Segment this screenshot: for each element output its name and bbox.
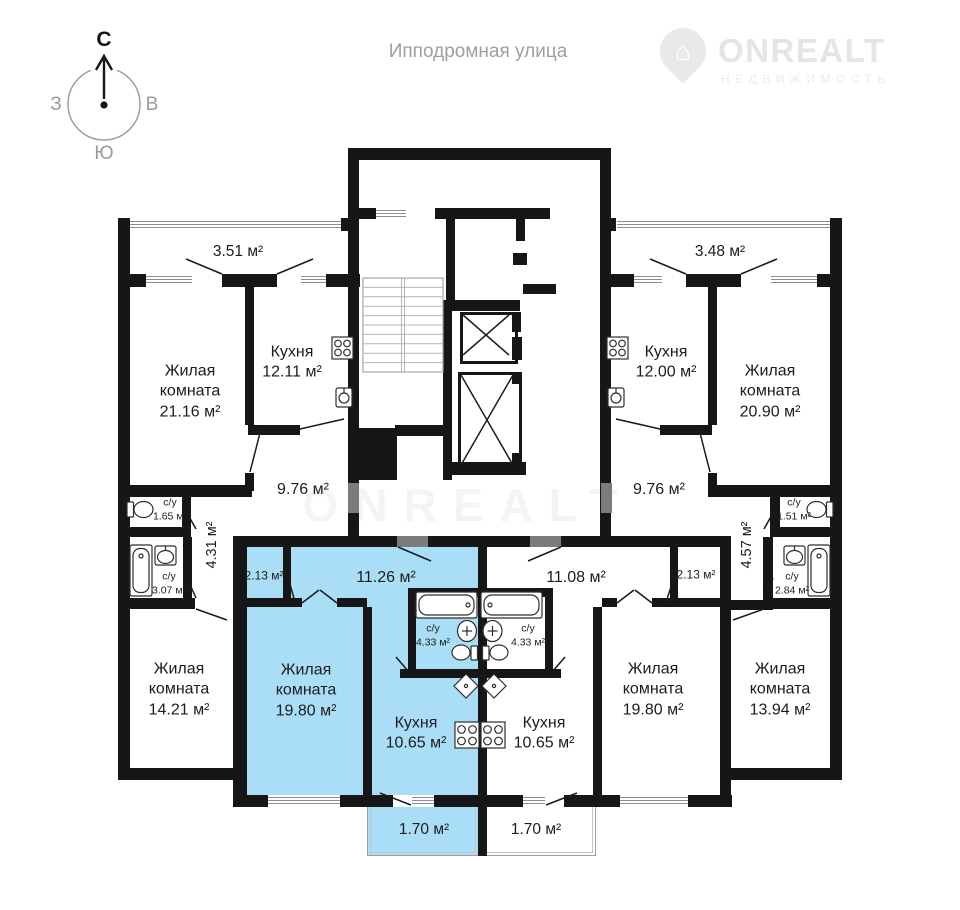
room-name: Жилая комната	[606, 660, 700, 701]
closet-area-blue: 2.13 м²	[245, 568, 284, 583]
wc-label-right-big: с/у 2.84 м²	[775, 570, 809, 597]
room-name: Жилая комната	[723, 362, 817, 403]
room-label-kitchen-blue: Кухня 10.65 м²	[386, 714, 447, 755]
door-swing	[187, 578, 196, 598]
room-area: 20.90 м²	[723, 402, 817, 422]
balcony-area-blue: 1.70 м²	[399, 820, 449, 840]
room-area: 19.80 м²	[606, 700, 700, 720]
logo-brand: ONREALT	[718, 32, 886, 70]
stove-icon	[332, 337, 628, 748]
room-label-bedroom-right: Жилая комната 13.94 м²	[733, 660, 827, 721]
room-name: Жилая комната	[733, 660, 827, 701]
wc-label-left-small: с/у 1.65 м²	[153, 496, 187, 523]
room-name: Кухня	[636, 343, 697, 363]
wc-label-left-big: с/у 3.07 м²	[152, 570, 186, 597]
compass-west-label: З	[50, 94, 61, 116]
door-swing	[764, 578, 773, 598]
door-swing	[733, 609, 764, 620]
wc-area: 2.84 м²	[775, 584, 809, 598]
door-swing	[617, 590, 634, 603]
room-label-kitchen-right: Кухня 12.00 м²	[636, 343, 697, 384]
door-swing	[196, 609, 227, 620]
street-label: Ипподромная улица	[389, 41, 568, 63]
logo-tagline: НЕДВИЖИМОСТЬ	[721, 72, 891, 86]
door-swing	[616, 419, 660, 429]
bathtub-icon	[130, 545, 830, 618]
compass-east-label: В	[146, 94, 159, 116]
sink-icon	[155, 388, 805, 642]
wc-name: с/у	[416, 622, 450, 636]
room-label-living-right: Жилая комната 20.90 м²	[723, 362, 817, 423]
room-label-living-left: Жилая комната 21.16 м²	[143, 362, 237, 423]
room-name: Жилая комната	[132, 660, 226, 701]
corridor-area-left: 4.31 м²	[203, 521, 221, 568]
room-name: Кухня	[262, 343, 322, 363]
compass-icon	[68, 55, 140, 140]
house-icon: ⌂	[660, 28, 706, 74]
elevator-x-icon	[461, 315, 513, 465]
wc-name: с/у	[511, 622, 545, 636]
wc-label-blue: с/у 4.33 м²	[416, 622, 450, 649]
onrealt-logo: ⌂ ONREALT НЕДВИЖИМОСТЬ	[650, 20, 950, 98]
hall-area-center-right: 11.08 м²	[546, 568, 606, 588]
room-area: 21.16 м²	[143, 402, 237, 422]
door-swing	[741, 259, 777, 274]
door-swing	[546, 793, 577, 805]
room-area: 10.65 м²	[514, 734, 575, 754]
room-name: Жилая комната	[143, 362, 237, 403]
door-swing	[288, 577, 295, 602]
door-swing	[320, 590, 337, 603]
corridor-area-right: 4.57 м²	[738, 521, 756, 568]
door-swing	[764, 513, 773, 529]
plan-overlay	[0, 0, 960, 910]
door-swing	[277, 259, 313, 274]
room-area: 19.80 м²	[259, 701, 353, 721]
room-label-bedroom-left: Жилая комната 14.21 м²	[132, 660, 226, 721]
door-swing	[650, 259, 686, 274]
door-swing	[699, 429, 710, 472]
hall-area-right: 9.76 м²	[633, 480, 685, 500]
door-swing	[396, 657, 408, 671]
room-name: Кухня	[514, 714, 575, 734]
room-label-living-blue: Жилая комната 19.80 м²	[259, 661, 353, 722]
toilet-icon	[127, 502, 833, 661]
wc-area: 1.65 м²	[153, 510, 187, 524]
room-label-kitchen-center-right: Кухня 10.65 м²	[514, 714, 575, 755]
wc-name: с/у	[777, 496, 811, 510]
door-swing	[250, 429, 261, 472]
balcony-area-left: 3.51 м²	[213, 242, 263, 262]
door-swing	[187, 513, 196, 529]
room-label-kitchen-left: Кухня 12.11 м²	[262, 343, 322, 384]
door-swing	[666, 578, 674, 602]
wc-area: 3.07 м²	[152, 584, 186, 598]
wc-area: 4.33 м²	[416, 636, 450, 650]
room-area: 14.21 м²	[132, 700, 226, 720]
map-pin-icon: ⌂	[650, 18, 715, 83]
closet-area-center-right: 2.13 м²	[677, 567, 716, 582]
compass-north-label: С	[96, 28, 111, 52]
room-label-living-center-right: Жилая комната 19.80 м²	[606, 660, 700, 721]
wc-name: с/у	[775, 570, 809, 584]
compass-south-label: Ю	[94, 143, 113, 165]
room-name: Жилая комната	[259, 661, 353, 702]
staircase	[363, 278, 443, 372]
room-area: 12.11 м²	[262, 363, 322, 383]
wc-name: с/у	[153, 496, 187, 510]
door-swing	[300, 419, 344, 429]
balcony-area-center-right: 1.70 м²	[511, 820, 561, 840]
room-area: 12.00 м²	[636, 363, 697, 383]
floor-plan-page: Ипподромная улица С З В Ю ⌂ ONREALT НЕДВ…	[0, 0, 960, 910]
wc-label-right-small: с/у 1.51 м²	[777, 496, 811, 523]
room-area: 13.94 м²	[733, 700, 827, 720]
door-swing	[528, 547, 561, 561]
wc-label-center-right: с/у 4.33 м²	[511, 622, 545, 649]
door-swing	[302, 590, 319, 603]
washing-machine-icon	[454, 674, 506, 698]
room-area: 10.65 м²	[386, 734, 447, 754]
balcony-area-right: 3.48 м²	[695, 242, 745, 262]
door-swing	[635, 590, 652, 603]
door-swing	[398, 547, 431, 561]
wc-area: 4.33 м²	[511, 636, 545, 650]
door-swing	[380, 793, 411, 805]
hall-area-blue: 11.26 м²	[356, 568, 416, 588]
door-swing	[553, 657, 565, 671]
wc-area: 1.51 м²	[777, 510, 811, 524]
hall-area-left: 9.76 м²	[277, 480, 329, 500]
room-name: Кухня	[386, 714, 447, 734]
wc-name: с/у	[152, 570, 186, 584]
